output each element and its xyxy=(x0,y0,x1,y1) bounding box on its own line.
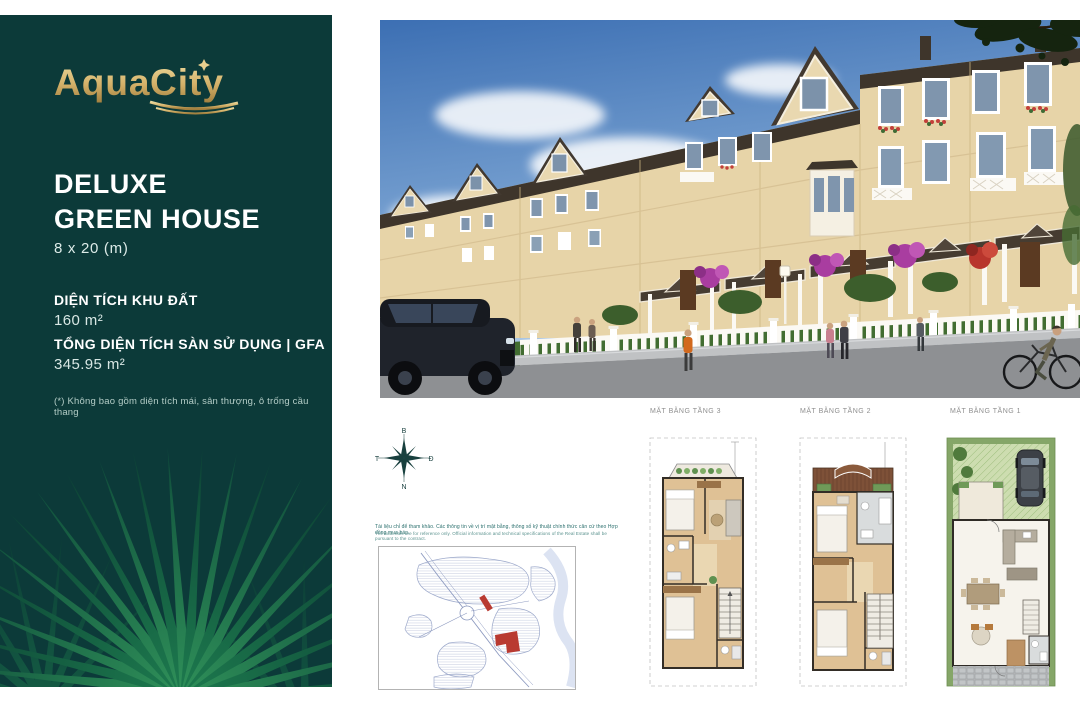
masterplan-map-illustration xyxy=(379,547,575,689)
compass-west-label: T xyxy=(375,456,380,463)
compass-east-label: Đ xyxy=(428,456,433,463)
site-map xyxy=(378,546,576,690)
page-title: DELUXE GREEN HOUSE xyxy=(54,167,260,236)
floorplan-level2 xyxy=(797,434,909,690)
townhouse-illustration xyxy=(380,20,1080,398)
gfa-value: 345.95 m² xyxy=(54,356,125,373)
floorplan-label-level3: MẶT BẰNG TẦNG 3 xyxy=(650,408,721,415)
brand-logo: Aqua City xyxy=(52,53,262,123)
floorplan-label-level1: MẶT BẰNG TẦNG 1 xyxy=(950,408,1021,415)
brand-sidebar: Aqua City DELUXE GREEN HOUSE 8 x 20 (m) … xyxy=(0,15,332,687)
map-caption-english: The materials are for reference only. Of… xyxy=(375,531,620,541)
floorplan-label-level2: MẶT BẰNG TẦNG 2 xyxy=(800,408,871,415)
land-area-value: 160 m² xyxy=(54,312,103,329)
land-area-label: DIỆN TÍCH KHU ĐẤT xyxy=(54,292,198,308)
title-line-1: DELUXE xyxy=(54,167,260,202)
hero-rendering xyxy=(380,20,1080,398)
logo-text-city: City xyxy=(150,62,224,103)
compass-rose-icon: B Đ N T xyxy=(372,424,436,490)
logo-swoosh-icon xyxy=(150,102,238,109)
floorplan-level1 xyxy=(943,434,1059,690)
compass-south-label: N xyxy=(401,484,406,490)
compass-north-label: B xyxy=(402,428,407,435)
area-footnote: (*) Không bao gồm diện tích mái, sân thư… xyxy=(54,396,316,418)
logo-text-aqua: Aqua xyxy=(54,62,151,103)
lot-size: 8 x 20 (m) xyxy=(54,240,129,257)
title-line-2: GREEN HOUSE xyxy=(54,202,260,237)
gfa-label: TỔNG DIỆN TÍCH SÀN SỬ DỤNG | GFA xyxy=(54,336,325,352)
floorplan-level3 xyxy=(647,434,759,690)
